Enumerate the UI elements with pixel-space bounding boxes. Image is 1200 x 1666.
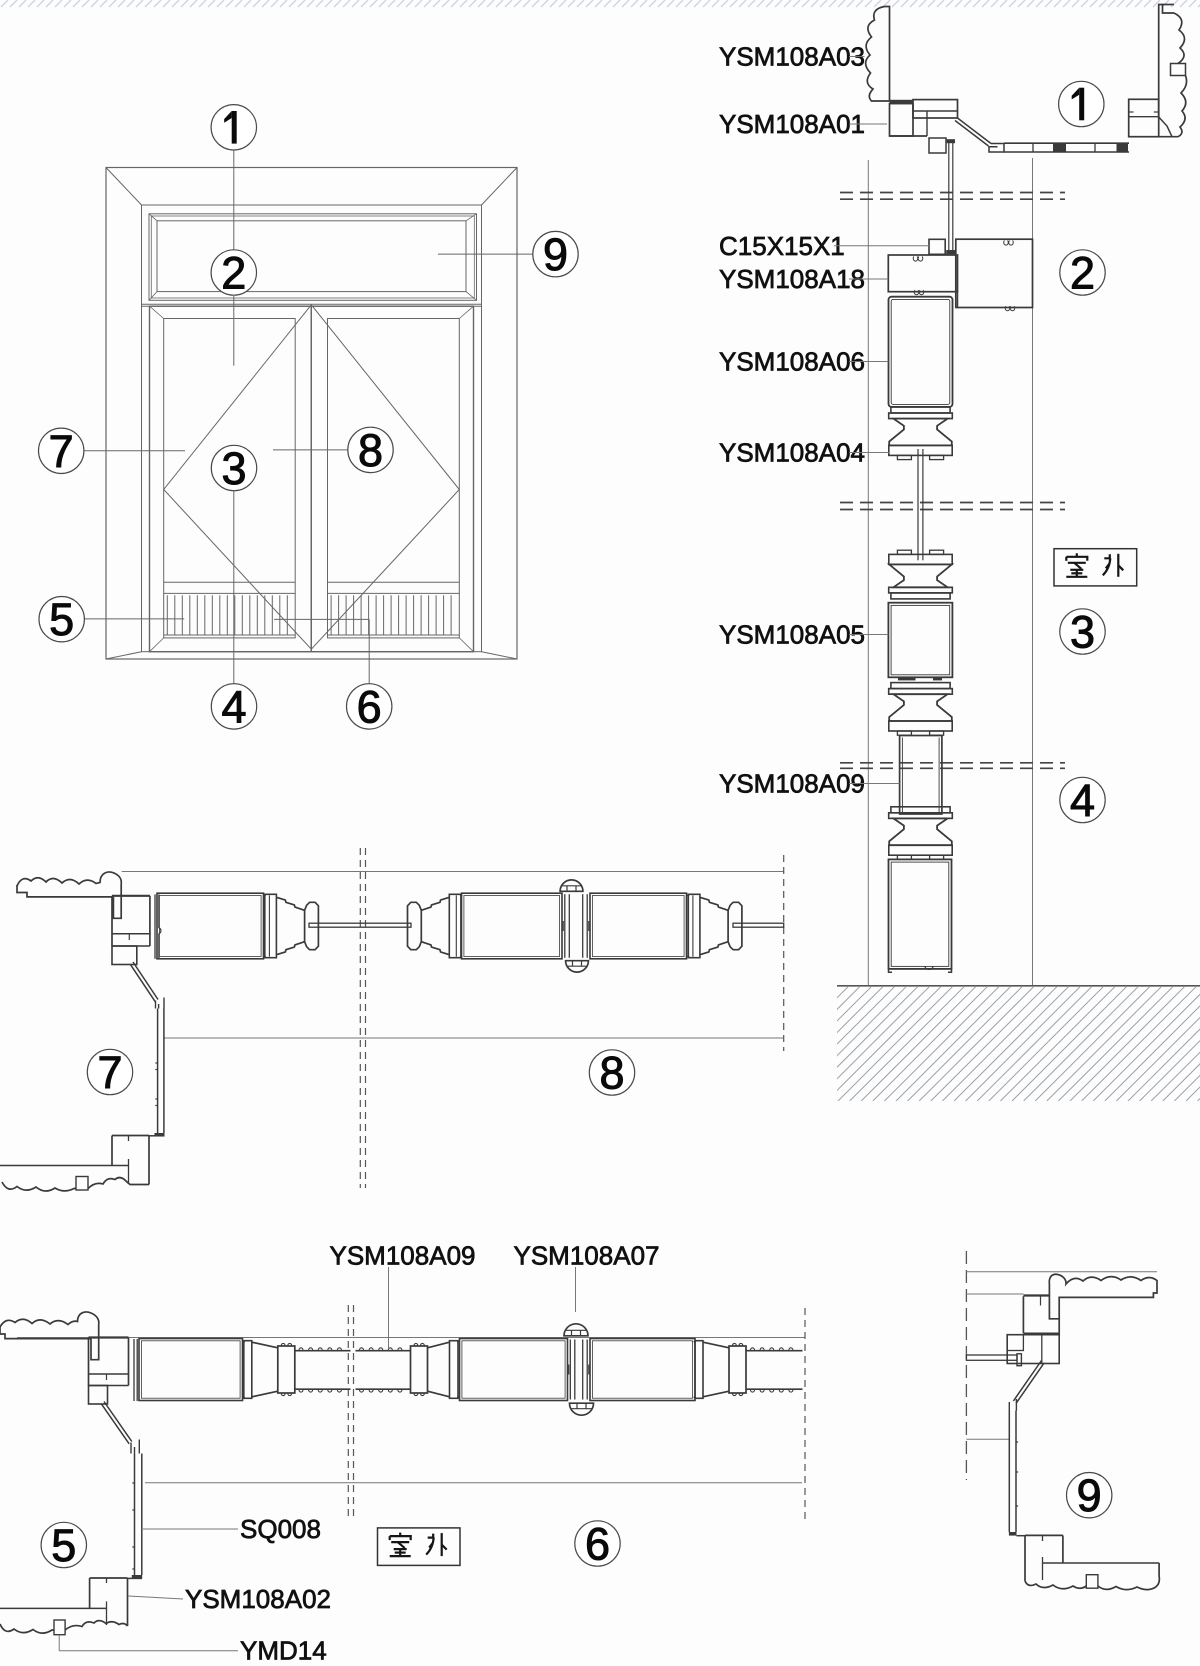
svg-text:YSM108A09: YSM108A09: [719, 769, 865, 799]
svg-text:2: 2: [221, 247, 246, 298]
svg-text:SQ008: SQ008: [240, 1514, 321, 1544]
svg-text:5: 5: [49, 594, 74, 645]
svg-text:YSM108A03: YSM108A03: [719, 42, 865, 72]
svg-text:9: 9: [543, 229, 568, 280]
svg-text:8: 8: [599, 1047, 624, 1098]
svg-text:3: 3: [1070, 606, 1095, 657]
svg-text:7: 7: [49, 426, 74, 477]
svg-text:2: 2: [1070, 247, 1095, 298]
svg-text:8: 8: [358, 425, 383, 476]
svg-text:6: 6: [585, 1518, 610, 1569]
svg-text:YSM108A05: YSM108A05: [719, 620, 865, 650]
svg-text:5: 5: [51, 1520, 76, 1571]
svg-text:YSM108A18: YSM108A18: [719, 264, 865, 294]
svg-text:4: 4: [221, 681, 246, 732]
svg-text:C15X15X1: C15X15X1: [719, 231, 845, 261]
svg-text:4: 4: [1070, 775, 1095, 826]
svg-text:YSM108A06: YSM108A06: [719, 347, 865, 377]
svg-text:9: 9: [1077, 1470, 1102, 1521]
svg-text:6: 6: [357, 681, 382, 732]
svg-text:3: 3: [221, 443, 246, 494]
svg-text:YSM108A02: YSM108A02: [185, 1584, 331, 1614]
svg-text:YMD14: YMD14: [240, 1636, 327, 1666]
svg-text:YSM108A01: YSM108A01: [719, 109, 865, 139]
svg-text:YSM108A09: YSM108A09: [330, 1241, 476, 1271]
svg-text:7: 7: [97, 1047, 122, 1098]
svg-text:YSM108A04: YSM108A04: [719, 438, 865, 468]
svg-text:YSM108A07: YSM108A07: [514, 1241, 660, 1271]
